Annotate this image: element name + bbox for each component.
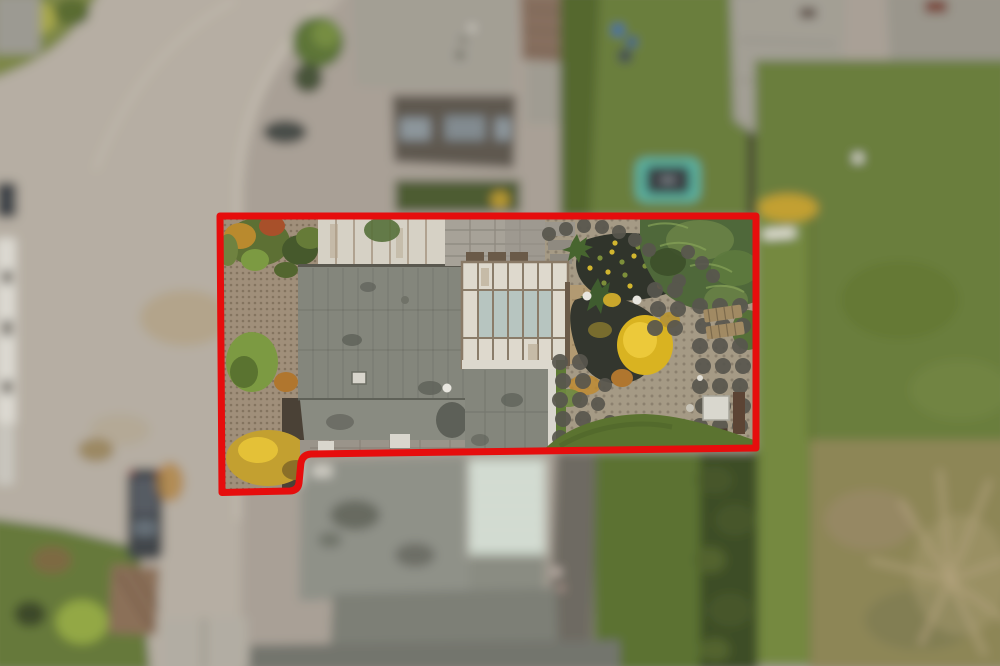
lamp-globes-item <box>633 296 642 305</box>
paver-circles-item <box>572 354 588 370</box>
round-planter <box>293 63 323 93</box>
trampoline <box>636 158 700 202</box>
paver-circles-item <box>628 233 642 247</box>
paver-circles-item <box>695 358 711 374</box>
autumn-overhang <box>156 462 184 502</box>
bright-bush <box>56 600 108 644</box>
aerial-photo <box>0 0 1000 666</box>
planter-box <box>466 252 484 262</box>
paver-circles-item <box>612 225 626 239</box>
lily-pads-item <box>587 265 592 270</box>
paver-circles-item <box>706 269 720 283</box>
paver-circles-item <box>732 378 748 394</box>
paver-circles-item <box>642 243 656 257</box>
back-lawn <box>560 0 757 218</box>
paver-circles-item <box>712 378 728 394</box>
paver-circles-item <box>595 220 609 234</box>
paver-circles-item <box>695 256 709 270</box>
lily-pads-item <box>609 249 614 254</box>
paver-circles-item <box>555 373 571 389</box>
lamp-globes-item <box>443 384 452 393</box>
glass-atrium-roof <box>462 262 568 369</box>
paver-circles-item <box>559 222 573 236</box>
front-lawn <box>594 452 704 666</box>
paver-circles-item <box>572 392 588 408</box>
paver-circles-item <box>552 392 568 408</box>
paver-circles-item <box>715 358 731 374</box>
lily-pads-item <box>612 240 617 245</box>
paver-circles-item <box>591 397 605 411</box>
paver-circles-item <box>681 245 695 259</box>
yellow-shrub-right <box>758 194 818 222</box>
toy-blue <box>612 24 624 36</box>
leaf-patch <box>140 290 230 346</box>
lily-pads-item <box>619 259 624 264</box>
extension-roof <box>465 360 566 455</box>
lamp-globes-item <box>583 292 592 301</box>
main-roof <box>298 267 479 401</box>
hedge-row <box>694 452 758 666</box>
paver-circles-item <box>552 354 568 370</box>
paver-circles-item <box>732 338 748 354</box>
lily-pads-item <box>627 283 632 288</box>
paver-circles-item <box>647 282 663 298</box>
lily-pads-item <box>622 272 627 277</box>
lily-pads-item <box>605 269 610 274</box>
paver-circles-item <box>555 411 571 427</box>
lily-pads-item <box>631 253 636 258</box>
vent-box <box>318 441 334 451</box>
meadow <box>810 440 1000 666</box>
wood-bench <box>733 392 745 434</box>
paver-circles-item <box>577 219 591 233</box>
aerial-photo-canvas <box>0 0 1000 666</box>
conservatory-roof <box>468 458 546 556</box>
roof-vent <box>352 372 366 384</box>
paver-circles-item <box>542 227 556 241</box>
paver-circles-item <box>735 358 751 374</box>
small-shed-roof <box>0 0 40 54</box>
overhanging-branch <box>364 218 400 242</box>
slab-patio <box>445 216 575 266</box>
paver-circles-item <box>667 282 683 298</box>
paver-circles-item <box>692 338 708 354</box>
paver-circles-item <box>647 320 663 336</box>
paver-circles-item <box>575 373 591 389</box>
parked-car-left <box>0 182 17 218</box>
paver-circles-item <box>712 338 728 354</box>
neighbor-roof-1 <box>352 0 516 92</box>
paver-circles-item <box>650 301 666 317</box>
lily-pads-item <box>597 255 602 260</box>
paver-circles-item <box>598 378 612 392</box>
paver-circles-item <box>667 320 683 336</box>
paver-circles-item <box>670 301 686 317</box>
white-ball <box>853 153 863 163</box>
lily-pads-item <box>601 280 606 285</box>
chimney <box>925 0 947 13</box>
front-house-roof <box>299 456 471 601</box>
